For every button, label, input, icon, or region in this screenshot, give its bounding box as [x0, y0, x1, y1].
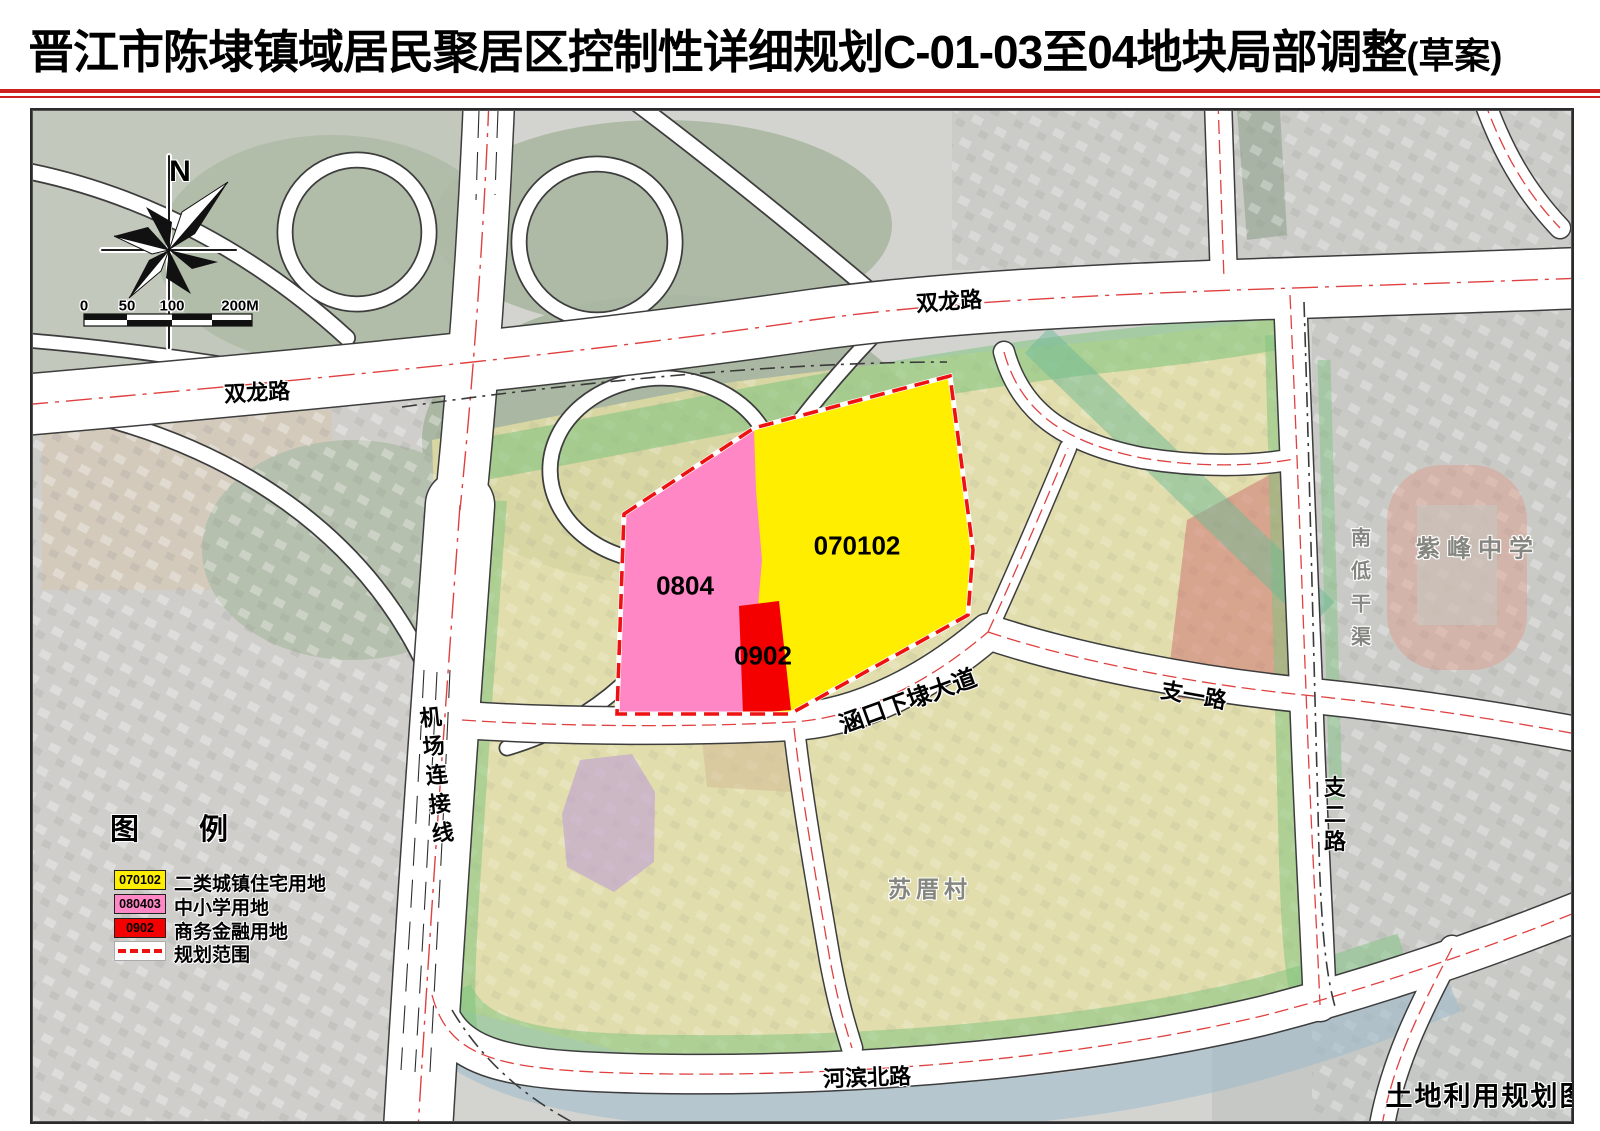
legend-label-boundary: 规划范围 [174, 940, 250, 967]
legend-label-residential: 二类城镇住宅用地 [174, 869, 326, 896]
legend-swatch-boundary [114, 941, 166, 961]
school-field [1417, 505, 1497, 625]
legend-title: 图 例 [110, 806, 254, 848]
land-use-planning-map: N 0 50 100 200M 双龙路 双龙路 机场连接线 涵口下埭大道 支一路… [30, 108, 1574, 1124]
title-rule-thick [0, 89, 1600, 93]
map-canvas [32, 110, 1572, 1122]
page-title: 晋江市陈埭镇域居民聚居区控制性详细规划C-01-03至04地块局部调整(草案) [28, 16, 1588, 82]
school-purple-zone [562, 754, 655, 892]
plan-title-draft-suffix: (草案) [1406, 35, 1502, 76]
legend-swatch-school: 080403 [114, 894, 166, 914]
plan-title-text: 晋江市陈埭镇域居民聚居区控制性详细规划C-01-03至04地块局部调整 [28, 26, 1406, 78]
buildings-west [32, 390, 452, 1122]
tan-plot-zone [702, 740, 797, 792]
legend-label-school: 中小学用地 [174, 893, 269, 920]
title-rule-thin [0, 96, 1600, 98]
legend-swatch-residential: 070102 [114, 870, 166, 890]
scale-bar [84, 314, 252, 326]
legend-swatch-finance: 0902 [114, 918, 166, 938]
boundary-dash-sample [118, 949, 162, 953]
buildings-north [952, 110, 1572, 270]
